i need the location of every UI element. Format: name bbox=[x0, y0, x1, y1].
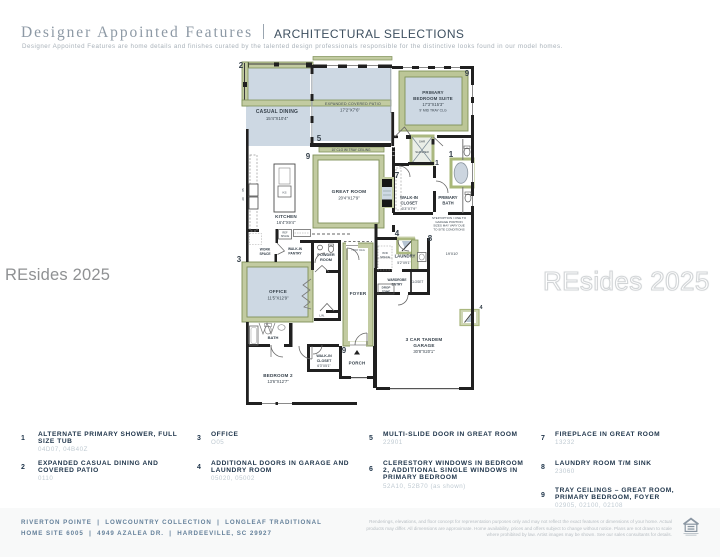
svg-text:30'8"X20'1": 30'8"X20'1" bbox=[413, 349, 435, 354]
svg-text:CLOSET: CLOSET bbox=[317, 359, 332, 363]
svg-text:7: 7 bbox=[395, 171, 400, 180]
svg-text:4: 4 bbox=[479, 305, 483, 311]
svg-text:CLOSET: CLOSET bbox=[401, 201, 418, 206]
svg-text:2: 2 bbox=[239, 61, 244, 70]
svg-text:BATH: BATH bbox=[442, 201, 453, 206]
svg-text:GREAT ROOM: GREAT ROOM bbox=[332, 189, 367, 195]
svg-text:8: 8 bbox=[428, 234, 433, 243]
svg-text:BEDROOM SUITE: BEDROOM SUITE bbox=[413, 96, 453, 101]
svg-text:CLOSET: CLOSET bbox=[411, 280, 424, 284]
svg-text:3 CAR TANDEM: 3 CAR TANDEM bbox=[406, 337, 443, 342]
svg-text:REF: REF bbox=[282, 231, 288, 235]
svg-text:9: 9 bbox=[465, 69, 470, 78]
svg-text:19'X10': 19'X10' bbox=[446, 252, 459, 256]
svg-text:SPACE: SPACE bbox=[259, 252, 271, 256]
svg-text:FOYER: FOYER bbox=[350, 291, 367, 296]
svg-text:9: 9 bbox=[342, 346, 347, 355]
svg-text:20'4"X17'9": 20'4"X17'9" bbox=[338, 196, 360, 201]
svg-text:WALK-IN: WALK-IN bbox=[316, 354, 332, 358]
svg-text:LIN.: LIN. bbox=[319, 314, 325, 318]
svg-text:SHR: SHR bbox=[419, 140, 426, 144]
svg-text:LAUNDRY: LAUNDRY bbox=[395, 254, 416, 259]
svg-text:BEDROOM 2: BEDROOM 2 bbox=[263, 373, 293, 378]
svg-text:TO SITE CONDITIONS: TO SITE CONDITIONS bbox=[433, 227, 464, 231]
svg-text:ENTRY: ENTRY bbox=[392, 283, 404, 287]
svg-text:WARDROBE: WARDROBE bbox=[388, 278, 407, 282]
svg-text:10' CLG W/ TRAY CEILING: 10' CLG W/ TRAY CEILING bbox=[331, 148, 371, 152]
svg-text:11'5"X12'9": 11'5"X12'9" bbox=[267, 296, 289, 301]
svg-text:EXPANDED COVERED PATIO: EXPANDED COVERED PATIO bbox=[325, 102, 381, 106]
svg-text:KITCHEN: KITCHEN bbox=[275, 214, 297, 219]
svg-text:PANTRY: PANTRY bbox=[288, 252, 302, 256]
svg-text:PORCH: PORCH bbox=[349, 361, 366, 366]
svg-text:9' MID TRAY CLG: 9' MID TRAY CLG bbox=[419, 109, 447, 113]
svg-text:13'6"X12'7": 13'6"X12'7" bbox=[267, 379, 289, 384]
svg-text:4: 4 bbox=[395, 229, 400, 238]
svg-text:5'2"X9'1": 5'2"X9'1" bbox=[397, 261, 411, 265]
svg-text:KS: KS bbox=[282, 191, 286, 195]
svg-text:9: 9 bbox=[306, 152, 311, 161]
svg-text:SPACE: SPACE bbox=[281, 234, 290, 238]
svg-text:3: 3 bbox=[237, 255, 242, 264]
svg-text:PRIMARY: PRIMARY bbox=[422, 90, 443, 95]
svg-text:ROOM: ROOM bbox=[320, 257, 332, 262]
svg-text:17'3"X15'3": 17'3"X15'3" bbox=[422, 102, 444, 107]
svg-text:16'4"X9'4": 16'4"X9'4" bbox=[276, 220, 296, 225]
svg-text:WALK-IN: WALK-IN bbox=[400, 195, 418, 200]
svg-text:5: 5 bbox=[317, 134, 322, 143]
svg-text:OFFICE: OFFICE bbox=[269, 289, 287, 294]
svg-text:PRIMARY: PRIMARY bbox=[438, 195, 457, 200]
svg-text:6'3"X7'9": 6'3"X7'9" bbox=[401, 207, 417, 211]
svg-text:CASUAL DINING: CASUAL DINING bbox=[256, 109, 298, 115]
svg-text:17'2"X7'6": 17'2"X7'6" bbox=[340, 108, 360, 113]
svg-text:15'4"X10'4": 15'4"X10'4" bbox=[266, 116, 289, 121]
svg-text:BATH: BATH bbox=[268, 335, 279, 340]
svg-text:GARAGE: GARAGE bbox=[413, 343, 434, 348]
svg-text:ZONE: ZONE bbox=[382, 290, 390, 294]
svg-text:WALK-IN: WALK-IN bbox=[288, 247, 303, 251]
svg-text:20: 20 bbox=[241, 197, 245, 201]
svg-text:1: 1 bbox=[449, 150, 454, 159]
svg-text:SPACE: SPACE bbox=[380, 255, 390, 259]
svg-text:05: 05 bbox=[241, 188, 245, 192]
svg-text:6'3"X5'1": 6'3"X5'1" bbox=[317, 364, 331, 368]
svg-text:1: 1 bbox=[435, 160, 439, 167]
svg-text:SHOWER: SHOWER bbox=[415, 150, 429, 154]
svg-text:WORK: WORK bbox=[260, 248, 271, 252]
